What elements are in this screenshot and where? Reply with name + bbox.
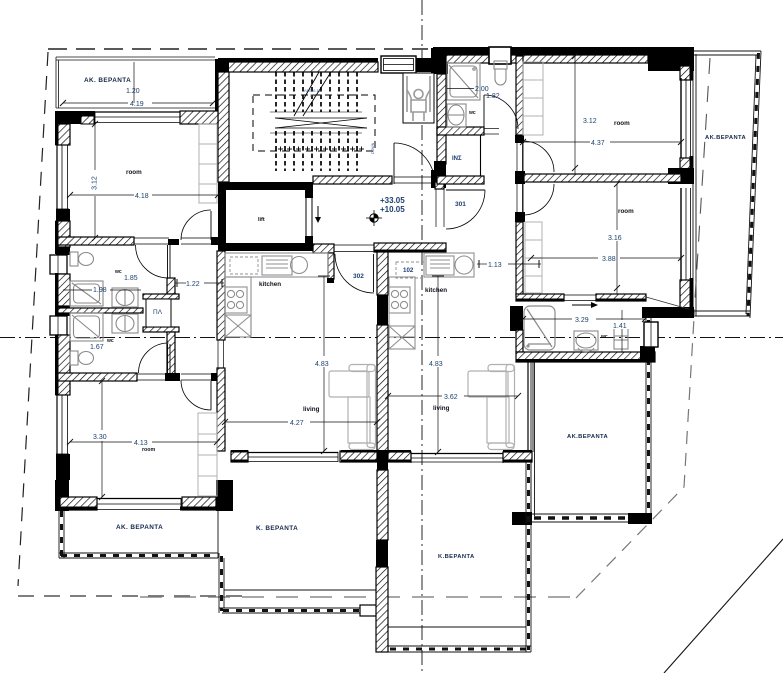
svg-text:kitchen: kitchen (259, 281, 281, 288)
svg-text:DOWN: DOWN (371, 142, 375, 154)
svg-text:wc: wc (114, 269, 122, 275)
svg-text:3.16: 3.16 (608, 235, 622, 242)
svg-text:wc: wc (106, 338, 114, 344)
svg-text:lift: lift (258, 217, 265, 223)
svg-text:+10.05: +10.05 (380, 205, 405, 214)
svg-text:1.41: 1.41 (613, 323, 627, 330)
svg-text:room: room (614, 120, 630, 127)
svg-text:2.00: 2.00 (475, 86, 489, 93)
svg-text:3.12: 3.12 (583, 118, 597, 125)
svg-text:living: living (433, 405, 450, 412)
svg-text:3.29: 3.29 (575, 317, 589, 324)
svg-text:room: room (618, 208, 634, 215)
svg-text:kitchen: kitchen (425, 287, 447, 294)
svg-text:ΑΚ.ΒΕΡΑΝΤΑ: ΑΚ.ΒΕΡΑΝΤΑ (567, 434, 609, 440)
svg-text:4.83: 4.83 (315, 361, 329, 368)
svg-text:ΑΚ. ΒΕΡΑΝΤΑ: ΑΚ. ΒΕΡΑΝΤΑ (116, 524, 163, 531)
svg-text:room: room (142, 447, 156, 453)
svg-text:Κ.ΒΕΡΑΝΤΑ: Κ.ΒΕΡΑΝΤΑ (438, 554, 475, 560)
svg-text:1.98: 1.98 (93, 287, 107, 294)
svg-text:room: room (126, 169, 142, 176)
svg-text:3.88: 3.88 (602, 256, 616, 263)
svg-text:3.62: 3.62 (444, 394, 458, 401)
svg-text:wc: wc (600, 334, 608, 340)
svg-text:4.13: 4.13 (134, 440, 148, 447)
svg-text:4.27: 4.27 (290, 420, 304, 427)
svg-text:ΑΚ. ΒΕΡΑΝΤΑ: ΑΚ. ΒΕΡΑΝΤΑ (84, 77, 131, 84)
svg-text:301: 301 (455, 201, 466, 208)
svg-text:Κ. ΒΕΡΑΝΤΑ: Κ. ΒΕΡΑΝΤΑ (256, 525, 298, 532)
svg-text:wc: wc (468, 110, 476, 116)
svg-text:1.20: 1.20 (126, 88, 140, 95)
svg-text:4.18: 4.18 (135, 193, 149, 200)
svg-text:0.3: 0.3 (310, 93, 316, 98)
svg-text:302: 302 (353, 273, 364, 280)
svg-text:ΑΚ.ΒΕΡΑΝΤΑ: ΑΚ.ΒΕΡΑΝΤΑ (705, 135, 747, 141)
svg-text:ΠΛ: ΠΛ (153, 309, 163, 316)
svg-text:1.82: 1.82 (486, 93, 500, 100)
svg-text:4.37: 4.37 (591, 140, 605, 147)
svg-text:3.12: 3.12 (92, 176, 99, 190)
svg-text:102: 102 (403, 267, 414, 274)
svg-text:4.19: 4.19 (130, 101, 144, 108)
svg-text:1.13: 1.13 (488, 262, 502, 269)
svg-text:1.22: 1.22 (186, 281, 200, 288)
svg-text:1.67: 1.67 (90, 344, 104, 351)
svg-text:1.85: 1.85 (124, 275, 138, 282)
svg-text:ΙΝΣ: ΙΝΣ (452, 156, 462, 162)
svg-text:living: living (303, 406, 320, 413)
svg-text:+33.05: +33.05 (380, 196, 405, 205)
svg-text:3.30: 3.30 (93, 434, 107, 441)
svg-text:4.83: 4.83 (429, 361, 443, 368)
